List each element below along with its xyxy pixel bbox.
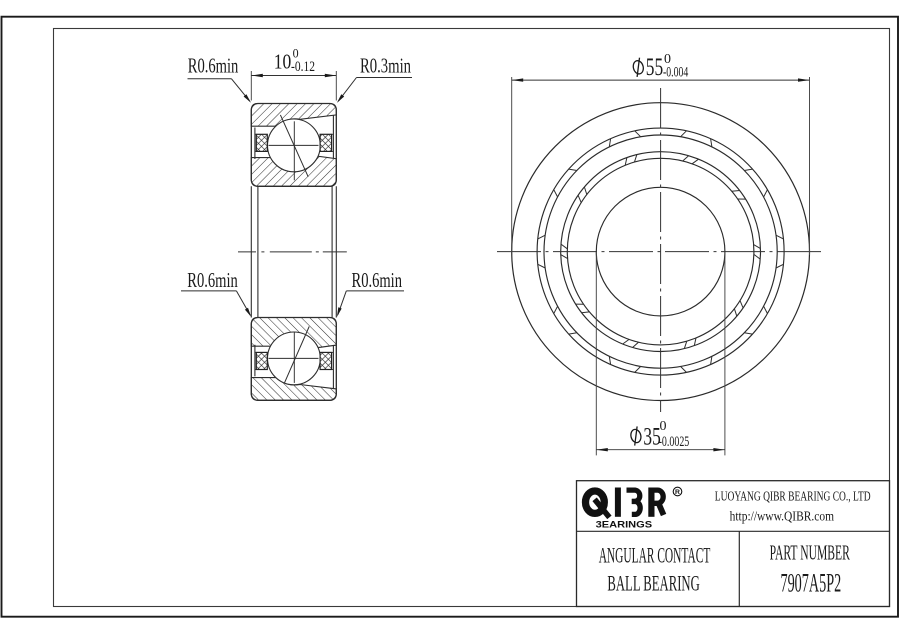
- svg-text:BALL BEARING: BALL BEARING: [607, 570, 699, 595]
- svg-text:3EARINGS: 3EARINGS: [596, 519, 653, 529]
- svg-text:-0.0025: -0.0025: [659, 434, 690, 450]
- svg-text:http://www.QIBR.com: http://www.QIBR.com: [730, 508, 835, 523]
- svg-text:ANGULAR CONTACT: ANGULAR CONTACT: [599, 542, 711, 567]
- svg-text:R0.6min: R0.6min: [188, 54, 239, 78]
- svg-text:R0.3min: R0.3min: [360, 54, 411, 78]
- svg-text:-0.12: -0.12: [291, 59, 315, 75]
- svg-text:0: 0: [660, 419, 667, 434]
- svg-text:LUOYANG QIBR BEARING CO., LTD: LUOYANG QIBR BEARING CO., LTD: [715, 489, 871, 504]
- svg-text:PART NUMBER: PART NUMBER: [770, 541, 850, 565]
- svg-text:-0.004: -0.004: [663, 65, 689, 81]
- svg-text:R: R: [675, 489, 680, 496]
- svg-text:7907A5P2: 7907A5P2: [781, 568, 842, 597]
- svg-text:R0.6min: R0.6min: [187, 268, 238, 292]
- svg-text:R0.6min: R0.6min: [352, 268, 403, 292]
- svg-text:55: 55: [646, 54, 663, 81]
- svg-text:10: 10: [274, 49, 292, 73]
